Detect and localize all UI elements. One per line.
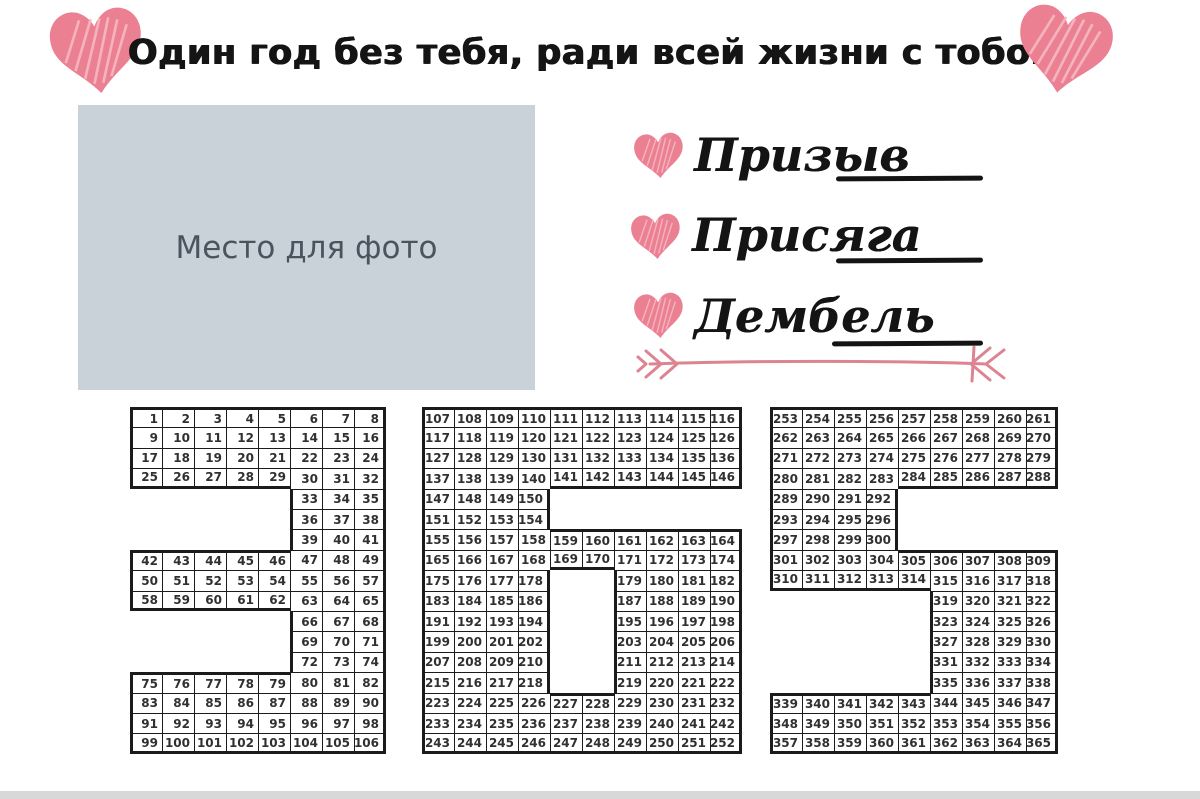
day-cell: 180 <box>646 570 678 590</box>
day-cell: 76 <box>162 672 194 692</box>
day-cell: 91 <box>130 713 162 733</box>
day-cell: 348 <box>770 713 802 733</box>
day-cell: 226 <box>518 693 550 713</box>
day-cell: 303 <box>834 550 866 570</box>
heart-icon <box>628 211 683 262</box>
day-cell: 320 <box>962 591 994 611</box>
day-cell: 12 <box>226 427 258 447</box>
day-cell: 70 <box>322 631 354 651</box>
day-cell: 23 <box>322 448 354 468</box>
day-cell: 344 <box>930 693 962 713</box>
day-cell: 168 <box>518 550 550 570</box>
day-cell: 92 <box>162 713 194 733</box>
day-cell: 326 <box>1026 611 1058 631</box>
day-cell: 237 <box>550 713 582 733</box>
day-cell: 54 <box>258 570 290 590</box>
day-cell: 220 <box>646 672 678 692</box>
day-cell: 287 <box>994 468 1026 488</box>
day-cell: 291 <box>834 489 866 509</box>
day-cell: 309 <box>1026 550 1058 570</box>
day-cell: 145 <box>678 468 710 488</box>
day-cell: 234 <box>454 713 486 733</box>
day-cell: 51 <box>162 570 194 590</box>
day-cell: 44 <box>194 550 226 570</box>
day-cell: 181 <box>678 570 710 590</box>
day-cell: 349 <box>802 713 834 733</box>
day-cell: 327 <box>930 631 962 651</box>
scribble-heart-icon <box>1009 0 1118 103</box>
day-cell: 137 <box>422 468 454 488</box>
day-cell: 73 <box>322 652 354 672</box>
day-cell: 269 <box>994 427 1026 447</box>
day-cell: 99 <box>130 733 162 753</box>
day-cell: 224 <box>454 693 486 713</box>
day-cell: 162 <box>646 529 678 549</box>
day-cell: 331 <box>930 652 962 672</box>
field-label-dembel: Дембель <box>694 293 934 339</box>
day-cell: 330 <box>1026 631 1058 651</box>
day-cell: 350 <box>834 713 866 733</box>
day-cell: 225 <box>486 693 518 713</box>
day-cell: 120 <box>518 427 550 447</box>
day-cell: 29 <box>258 468 290 488</box>
day-cell: 285 <box>930 468 962 488</box>
day-cell: 156 <box>454 529 486 549</box>
day-cell: 131 <box>550 448 582 468</box>
heart-icon <box>631 290 686 341</box>
day-cell: 324 <box>962 611 994 631</box>
fletched-arrow-divider-icon <box>634 342 1012 384</box>
day-cell: 310 <box>770 570 802 590</box>
day-cell: 279 <box>1026 448 1058 468</box>
day-cell: 216 <box>454 672 486 692</box>
day-cell: 255 <box>834 407 866 427</box>
day-cell: 306 <box>930 550 962 570</box>
day-cell: 363 <box>962 733 994 753</box>
day-cell: 83 <box>130 693 162 713</box>
day-cell: 365 <box>1026 733 1058 753</box>
day-cell: 244 <box>454 733 486 753</box>
day-cell: 150 <box>518 489 550 509</box>
day-cell: 356 <box>1026 713 1058 733</box>
day-cell: 298 <box>802 529 834 549</box>
day-cell: 9 <box>130 427 162 447</box>
day-cell: 123 <box>614 427 646 447</box>
day-cell: 199 <box>422 631 454 651</box>
day-cell: 87 <box>258 693 290 713</box>
day-cell: 110 <box>518 407 550 427</box>
day-cell: 264 <box>834 427 866 447</box>
day-cell: 132 <box>582 448 614 468</box>
day-cell: 142 <box>582 468 614 488</box>
day-cell: 161 <box>614 529 646 549</box>
day-cell: 215 <box>422 672 454 692</box>
day-cell: 80 <box>290 672 322 692</box>
day-cell: 25 <box>130 468 162 488</box>
day-cell: 40 <box>322 529 354 549</box>
day-cell: 182 <box>710 570 742 590</box>
day-cell: 325 <box>994 611 1026 631</box>
day-cell: 71 <box>354 631 386 651</box>
day-cell: 304 <box>866 550 898 570</box>
day-cell: 176 <box>454 570 486 590</box>
day-cell: 104 <box>290 733 322 753</box>
day-cell: 116 <box>710 407 742 427</box>
day-cell: 3 <box>194 407 226 427</box>
day-cell: 362 <box>930 733 962 753</box>
day-cell: 89 <box>322 693 354 713</box>
day-cell: 96 <box>290 713 322 733</box>
day-cell: 135 <box>678 448 710 468</box>
day-cell: 78 <box>226 672 258 692</box>
day-cell: 130 <box>518 448 550 468</box>
day-cell: 359 <box>834 733 866 753</box>
fill-in-line-prizyv <box>836 176 983 182</box>
day-cell: 152 <box>454 509 486 529</box>
day-cell: 14 <box>290 427 322 447</box>
day-cell: 147 <box>422 489 454 509</box>
day-cell: 108 <box>454 407 486 427</box>
day-cell: 11 <box>194 427 226 447</box>
day-cell: 335 <box>930 672 962 692</box>
day-cell: 20 <box>226 448 258 468</box>
day-cell: 321 <box>994 591 1026 611</box>
day-cell: 79 <box>258 672 290 692</box>
day-cell: 55 <box>290 570 322 590</box>
day-cell: 253 <box>770 407 802 427</box>
day-cell: 33 <box>290 489 322 509</box>
day-cell: 332 <box>962 652 994 672</box>
day-cell: 190 <box>710 591 742 611</box>
day-cell: 322 <box>1026 591 1058 611</box>
day-cell: 339 <box>770 693 802 713</box>
day-cell: 148 <box>454 489 486 509</box>
day-cell: 144 <box>646 468 678 488</box>
day-cell: 100 <box>162 733 194 753</box>
day-cell: 72 <box>290 652 322 672</box>
day-cell: 57 <box>354 570 386 590</box>
day-cell: 21 <box>258 448 290 468</box>
day-cell: 250 <box>646 733 678 753</box>
day-cell: 257 <box>898 407 930 427</box>
day-cell: 129 <box>486 448 518 468</box>
day-cell: 112 <box>582 407 614 427</box>
day-cell: 241 <box>678 713 710 733</box>
day-cell: 114 <box>646 407 678 427</box>
day-cell: 315 <box>930 570 962 590</box>
day-cell: 93 <box>194 713 226 733</box>
day-cell: 77 <box>194 672 226 692</box>
day-cell: 64 <box>322 591 354 611</box>
day-cell: 191 <box>422 611 454 631</box>
day-cell: 355 <box>994 713 1026 733</box>
day-cell: 15 <box>322 427 354 447</box>
day-cell: 169 <box>550 550 582 570</box>
day-cell: 260 <box>994 407 1026 427</box>
day-cell: 275 <box>898 448 930 468</box>
day-cell: 48 <box>322 550 354 570</box>
day-cell: 261 <box>1026 407 1058 427</box>
day-cell: 364 <box>994 733 1026 753</box>
day-cell: 218 <box>518 672 550 692</box>
day-cell: 160 <box>582 529 614 549</box>
day-cell: 124 <box>646 427 678 447</box>
day-cell: 208 <box>454 652 486 672</box>
day-cell: 8 <box>354 407 386 427</box>
day-cell: 277 <box>962 448 994 468</box>
day-cell: 158 <box>518 529 550 549</box>
day-cell: 227 <box>550 693 582 713</box>
day-cell: 60 <box>194 591 226 611</box>
day-cell: 69 <box>290 631 322 651</box>
day-cell: 183 <box>422 591 454 611</box>
day-cell: 134 <box>646 448 678 468</box>
day-cell: 294 <box>802 509 834 529</box>
day-cell: 75 <box>130 672 162 692</box>
day-cell: 59 <box>162 591 194 611</box>
day-cell: 252 <box>710 733 742 753</box>
day-cell: 106 <box>354 733 386 753</box>
day-cell: 63 <box>290 591 322 611</box>
day-cell: 259 <box>962 407 994 427</box>
day-cell: 111 <box>550 407 582 427</box>
day-cell: 212 <box>646 652 678 672</box>
day-cell: 154 <box>518 509 550 529</box>
day-cell: 37 <box>322 509 354 529</box>
day-cell: 288 <box>1026 468 1058 488</box>
day-cell: 50 <box>130 570 162 590</box>
day-cell: 205 <box>678 631 710 651</box>
day-cell: 31 <box>322 468 354 488</box>
day-cell: 265 <box>866 427 898 447</box>
day-cell: 307 <box>962 550 994 570</box>
day-cell: 297 <box>770 529 802 549</box>
day-cell: 125 <box>678 427 710 447</box>
day-cell: 98 <box>354 713 386 733</box>
day-cell: 35 <box>354 489 386 509</box>
day-cell: 268 <box>962 427 994 447</box>
day-cell: 290 <box>802 489 834 509</box>
day-cell: 338 <box>1026 672 1058 692</box>
day-cell: 198 <box>710 611 742 631</box>
day-cell: 334 <box>1026 652 1058 672</box>
day-cell: 149 <box>486 489 518 509</box>
day-cell: 360 <box>866 733 898 753</box>
day-cell: 159 <box>550 529 582 549</box>
day-cell: 200 <box>454 631 486 651</box>
day-cell: 102 <box>226 733 258 753</box>
field-label-prisyaga: Присяга <box>692 212 921 258</box>
day-cell: 209 <box>486 652 518 672</box>
day-cell: 119 <box>486 427 518 447</box>
day-cell: 24 <box>354 448 386 468</box>
day-cell: 42 <box>130 550 162 570</box>
day-cell: 90 <box>354 693 386 713</box>
day-cell: 171 <box>614 550 646 570</box>
day-cell: 178 <box>518 570 550 590</box>
day-cell: 95 <box>258 713 290 733</box>
day-cell: 74 <box>354 652 386 672</box>
day-cell: 58 <box>130 591 162 611</box>
day-cell: 82 <box>354 672 386 692</box>
day-cell: 295 <box>834 509 866 529</box>
day-cell: 230 <box>646 693 678 713</box>
day-cell: 337 <box>994 672 1026 692</box>
day-cell: 185 <box>486 591 518 611</box>
day-cell: 18 <box>162 448 194 468</box>
day-cell: 30 <box>290 468 322 488</box>
day-cell: 280 <box>770 468 802 488</box>
day-cell: 4 <box>226 407 258 427</box>
day-cell: 26 <box>162 468 194 488</box>
day-cell: 88 <box>290 693 322 713</box>
day-cell: 258 <box>930 407 962 427</box>
day-cell: 128 <box>454 448 486 468</box>
day-cell: 323 <box>930 611 962 631</box>
day-cell: 243 <box>422 733 454 753</box>
day-cell: 36 <box>290 509 322 529</box>
day-cell: 52 <box>194 570 226 590</box>
day-cell: 32 <box>354 468 386 488</box>
day-cell: 329 <box>994 631 1026 651</box>
day-cell: 229 <box>614 693 646 713</box>
day-cell: 292 <box>866 489 898 509</box>
day-cell: 238 <box>582 713 614 733</box>
day-cell: 358 <box>802 733 834 753</box>
day-cell: 346 <box>994 693 1026 713</box>
day-cell: 34 <box>322 489 354 509</box>
day-cell: 138 <box>454 468 486 488</box>
day-cell: 214 <box>710 652 742 672</box>
day-cell: 39 <box>290 529 322 549</box>
day-cell: 166 <box>454 550 486 570</box>
day-cell: 107 <box>422 407 454 427</box>
day-cell: 136 <box>710 448 742 468</box>
day-cell: 256 <box>866 407 898 427</box>
day-cell: 311 <box>802 570 834 590</box>
day-cell: 300 <box>866 529 898 549</box>
fill-in-line-prisyaga <box>836 258 983 264</box>
day-cell: 270 <box>1026 427 1058 447</box>
day-cell: 86 <box>226 693 258 713</box>
day-cell: 193 <box>486 611 518 631</box>
day-cell: 13 <box>258 427 290 447</box>
day-cell: 97 <box>322 713 354 733</box>
day-cell: 340 <box>802 693 834 713</box>
day-cell: 1 <box>130 407 162 427</box>
day-cell: 231 <box>678 693 710 713</box>
day-cell: 68 <box>354 611 386 631</box>
day-cell: 343 <box>898 693 930 713</box>
day-cell: 246 <box>518 733 550 753</box>
day-cell: 314 <box>898 570 930 590</box>
day-cell: 316 <box>962 570 994 590</box>
day-cell: 192 <box>454 611 486 631</box>
day-cell: 271 <box>770 448 802 468</box>
day-cell: 173 <box>678 550 710 570</box>
day-cell: 201 <box>486 631 518 651</box>
day-cell: 353 <box>930 713 962 733</box>
day-cell: 263 <box>802 427 834 447</box>
day-cell: 41 <box>354 529 386 549</box>
day-cell: 242 <box>710 713 742 733</box>
day-cell: 357 <box>770 733 802 753</box>
bottom-edge-strip <box>0 791 1200 799</box>
day-cell: 236 <box>518 713 550 733</box>
day-cell: 272 <box>802 448 834 468</box>
day-cell: 143 <box>614 468 646 488</box>
day-cell: 302 <box>802 550 834 570</box>
day-cell: 67 <box>322 611 354 631</box>
day-cell: 65 <box>354 591 386 611</box>
day-cell: 248 <box>582 733 614 753</box>
day-cell: 273 <box>834 448 866 468</box>
day-cell: 103 <box>258 733 290 753</box>
day-cell: 217 <box>486 672 518 692</box>
day-cell: 342 <box>866 693 898 713</box>
field-label-prizyv: Призыв <box>694 132 909 178</box>
day-cell: 164 <box>710 529 742 549</box>
day-cell: 281 <box>802 468 834 488</box>
day-cell: 10 <box>162 427 194 447</box>
day-cell: 319 <box>930 591 962 611</box>
day-cell: 84 <box>162 693 194 713</box>
day-cell: 47 <box>290 550 322 570</box>
day-cell: 328 <box>962 631 994 651</box>
day-cell: 53 <box>226 570 258 590</box>
day-cell: 146 <box>710 468 742 488</box>
day-cell: 61 <box>226 591 258 611</box>
day-cell: 66 <box>290 611 322 631</box>
photo-placeholder-label: Место для фото <box>176 230 438 266</box>
day-cell: 233 <box>422 713 454 733</box>
day-cell: 155 <box>422 529 454 549</box>
day-cell: 46 <box>258 550 290 570</box>
day-cell: 56 <box>322 570 354 590</box>
day-cell: 286 <box>962 468 994 488</box>
day-cell: 284 <box>898 468 930 488</box>
day-cell: 240 <box>646 713 678 733</box>
day-cell: 282 <box>834 468 866 488</box>
day-cell: 232 <box>710 693 742 713</box>
day-cell: 213 <box>678 652 710 672</box>
day-cell: 289 <box>770 489 802 509</box>
day-cell: 207 <box>422 652 454 672</box>
day-cell: 81 <box>322 672 354 692</box>
day-cell: 247 <box>550 733 582 753</box>
day-cell: 206 <box>710 631 742 651</box>
demob-calendar-poster: Один год без тебя, ради всей жизни с тоб… <box>0 0 1200 799</box>
day-cell: 170 <box>582 550 614 570</box>
day-cell: 43 <box>162 550 194 570</box>
day-cell: 179 <box>614 570 646 590</box>
day-cell: 276 <box>930 448 962 468</box>
day-cell: 202 <box>518 631 550 651</box>
day-cell: 22 <box>290 448 322 468</box>
day-cell: 122 <box>582 427 614 447</box>
day-cell: 153 <box>486 509 518 529</box>
day-cell: 347 <box>1026 693 1058 713</box>
day-cell: 139 <box>486 468 518 488</box>
day-cell: 113 <box>614 407 646 427</box>
day-cell: 235 <box>486 713 518 733</box>
day-cell: 222 <box>710 672 742 692</box>
day-cell: 140 <box>518 468 550 488</box>
day-cell: 318 <box>1026 570 1058 590</box>
day-cell: 165 <box>422 550 454 570</box>
day-cell: 313 <box>866 570 898 590</box>
day-cell: 361 <box>898 733 930 753</box>
